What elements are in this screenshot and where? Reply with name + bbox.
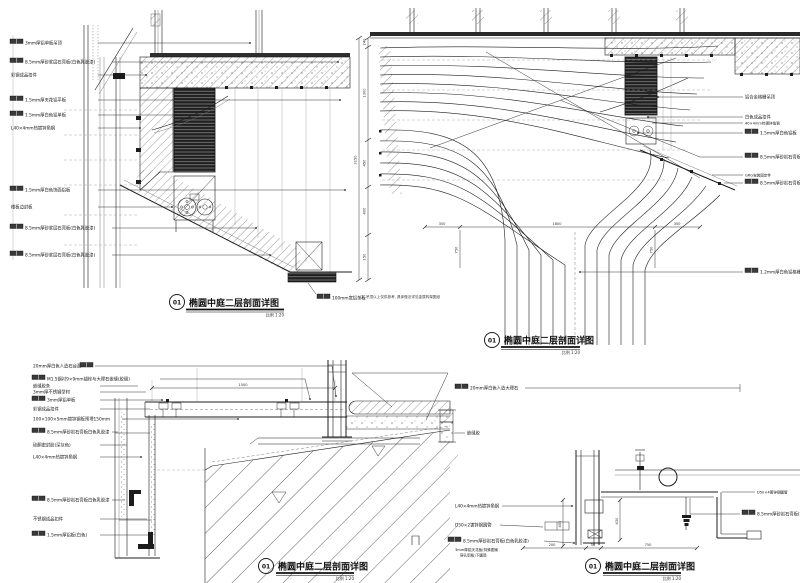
- dimension-chain-bottom: 350 1800 350 750 750: [423, 222, 702, 268]
- left-wall-assembly: [115, 398, 205, 558]
- callout-label: 20mm厚白色人造石台面: [33, 363, 82, 370]
- detail-scale: 比例 1:20: [663, 575, 682, 581]
- dimension-text: 50: [591, 543, 596, 547]
- dimension-text: 750: [650, 246, 654, 254]
- mushroom-column-curves: [378, 46, 720, 345]
- dimension-text: 1800: [552, 222, 562, 226]
- sloped-soffit-hatch: [120, 170, 352, 272]
- panel-top-right: 240 1300 450 400 150 3150 350 1800 350 7…: [354, 8, 800, 355]
- callout-label: 白色成品扣件: [745, 114, 771, 121]
- drawing-sheet: 3mm厚铝单板吊顶 8.5mm厚砂浆层石膏板(白色乳胶漆) 彩钢成品扣件 1.5…: [0, 0, 800, 583]
- callout-label: L40×4mm热镀锌角钢: [33, 454, 77, 461]
- dimension-text: 350: [439, 222, 447, 226]
- panel-bottom-right: 450 430 200 50 750 20mm厚白色人造大理石 嵌缝胶 L40×…: [438, 384, 800, 581]
- callout-label: 3mm厚铝单板: [47, 397, 76, 404]
- callout-label: 3mm厚铝单板吊顶: [25, 40, 63, 47]
- callout-label: 100×100×5mm镀锌钢板预埋150mm: [33, 416, 110, 423]
- callout-label: 8.5mm厚砂浆层石膏板(白色乳胶漆): [25, 59, 95, 66]
- callout-label: 8.5mm厚砂岩石膏板(白色乳胶漆): [757, 511, 800, 518]
- detail-number: 01: [173, 300, 181, 307]
- callout-label: 嵌缝胶: [467, 430, 481, 437]
- general-note: 注: 吊顶以上仅供参考, 具体做法详见金属构架图纸: [360, 294, 441, 299]
- concrete-slab-large: [205, 426, 450, 583]
- callout-label: 1.5mm厚白色铝单板: [25, 112, 67, 119]
- callout-label: 8.5mm厚砂岩石膏板(白色乳胶漆): [463, 538, 529, 545]
- callout-label: 1.5mm厚白色饰面铝板: [25, 187, 71, 194]
- callout-label: 40×4mm热镀锌角钢: [745, 121, 780, 126]
- detail-number: 01: [589, 564, 597, 571]
- pipe-section-circle: [659, 468, 677, 486]
- dimension-text: 430: [615, 517, 619, 525]
- dimension-text: 350: [674, 222, 682, 226]
- detail-number: 01: [488, 338, 496, 345]
- dimension-text: 200: [549, 543, 557, 547]
- callout-label: 1.5mm厚铝板(白色): [47, 532, 87, 539]
- callout-label: L40×4mm热镀锌角钢: [455, 503, 499, 510]
- callout-label: 20mm厚白色人造大理石: [470, 385, 519, 392]
- callout-label: M1.5钢衬9×9mm锚栓与大理石嵌缝(胶缝): [47, 376, 130, 383]
- detail-number: 01: [262, 564, 270, 571]
- callout-label: D50×4镀锌钢圆管: [757, 490, 788, 495]
- dimension-text: 400: [363, 207, 367, 215]
- callout-label: 3mm厚铝天花板(特殊图案: [455, 547, 498, 552]
- roof-mullions: [151, 10, 262, 57]
- dimension-text: 750: [645, 543, 653, 547]
- detail-title: 椭圆中庭二层剖面详图: [278, 561, 368, 573]
- detail-title: 椭圆中庭二层剖面详图: [605, 561, 695, 573]
- detail-title: 椭圆中庭二层剖面详图: [189, 297, 279, 309]
- callout-label: 楼板边封板: [11, 204, 33, 211]
- callout-label: L40×4mm热镀锌角钢: [11, 125, 55, 132]
- floor-screed-band: [346, 373, 450, 429]
- callout-label: 1.2mm厚白色铝格栅: [760, 269, 800, 276]
- detail-scale: 比例 1:20: [336, 575, 355, 581]
- dimension-chain-left: 240 1300 450 400 150 3150: [354, 36, 372, 282]
- dimension-text: 750: [455, 246, 459, 254]
- panel-top-left: 3mm厚铝单板吊顶 8.5mm厚砂浆层石膏板(白色乳胶漆) 彩钢成品扣件 1.5…: [10, 10, 366, 318]
- callout-label: 彩钢成品扣件: [11, 72, 37, 79]
- c-channel: [747, 531, 761, 539]
- dimension-text: 150: [363, 253, 367, 261]
- detail-title-top-right: 01 椭圆中庭二层剖面详图 比例 1:20: [485, 333, 595, 356]
- callout-label: D50×2镀锌钢圆管: [455, 522, 492, 529]
- sprinkler-head: [682, 497, 691, 530]
- detail-title-bottom-right: 01 椭圆中庭二层剖面详图 比例 1:20: [586, 559, 696, 582]
- callout-label: GRG安装固定件: [745, 173, 771, 178]
- dimension-text: 3150: [354, 155, 358, 165]
- detail-scale: 比例 1:20: [266, 312, 285, 318]
- callout-label: 不锈钢成品扣件: [33, 516, 64, 523]
- panel-bottom-left: 1500: [32, 360, 450, 583]
- roof-structure: [370, 8, 800, 38]
- callout-label: 硅酮密封胶(深灰色): [33, 442, 71, 449]
- cad-canvas: 3mm厚铝单板吊顶 8.5mm厚砂浆层石膏板(白色乳胶漆) 彩钢成品扣件 1.5…: [0, 0, 800, 583]
- detail-scale: 比例 1:20: [562, 349, 581, 355]
- dimension-text: 1300: [363, 88, 367, 98]
- callout-label: 8.5mm厚砂浆层石膏板(白色乳胶漆): [25, 225, 95, 232]
- callout-label: 8.5mm厚砂岩石膏板(白色乳胶漆): [760, 154, 800, 161]
- dimension-text: 450: [558, 520, 562, 528]
- callout-label: 8.5mm厚砂岩石膏板(白色乳胶漆): [760, 180, 800, 187]
- steel-post: [545, 450, 605, 545]
- callout-label: 1.5mm厚白色铝板: [760, 130, 797, 137]
- callout-labels-right: 铝合金格栅吊顶 白色成品扣件 40×4mm热镀锌角钢 1.5mm厚白色铝板 8.…: [560, 94, 800, 276]
- callout-label: 3mm厚不锈钢型材: [33, 389, 71, 396]
- callout-label: 8.5mm厚砂岩石膏板白色乳胶漆: [47, 429, 110, 436]
- dimension-text: 240: [363, 38, 367, 46]
- callout-label: 穿孔铝板)下圆弧: [460, 553, 487, 558]
- callout-label: 8.5mm厚砂浆层石膏板(白色乳胶漆): [25, 252, 95, 259]
- callout-label: 8.5mm厚砂岩石膏板白色乳胶漆: [47, 497, 110, 504]
- dimension-top: 1500: [150, 380, 337, 402]
- callout-label: 铝合金格栅吊顶: [745, 94, 776, 101]
- detail-title: 椭圆中庭二层剖面详图: [504, 335, 594, 347]
- callout-label: 1.5mm厚天花铝平板: [25, 97, 67, 104]
- dimension-text: 1500: [238, 383, 248, 387]
- callout-label: 嵌缝胶条: [33, 383, 51, 390]
- dimension-text: 450: [363, 159, 367, 167]
- detail-title-top-left: 01 椭圆中庭二层剖面详图 比例 1:20: [170, 295, 285, 318]
- concrete-slab-hatch: [140, 53, 350, 190]
- callout-label: 彩钢成品扣件: [33, 406, 59, 413]
- ceiling-plane: [601, 450, 800, 539]
